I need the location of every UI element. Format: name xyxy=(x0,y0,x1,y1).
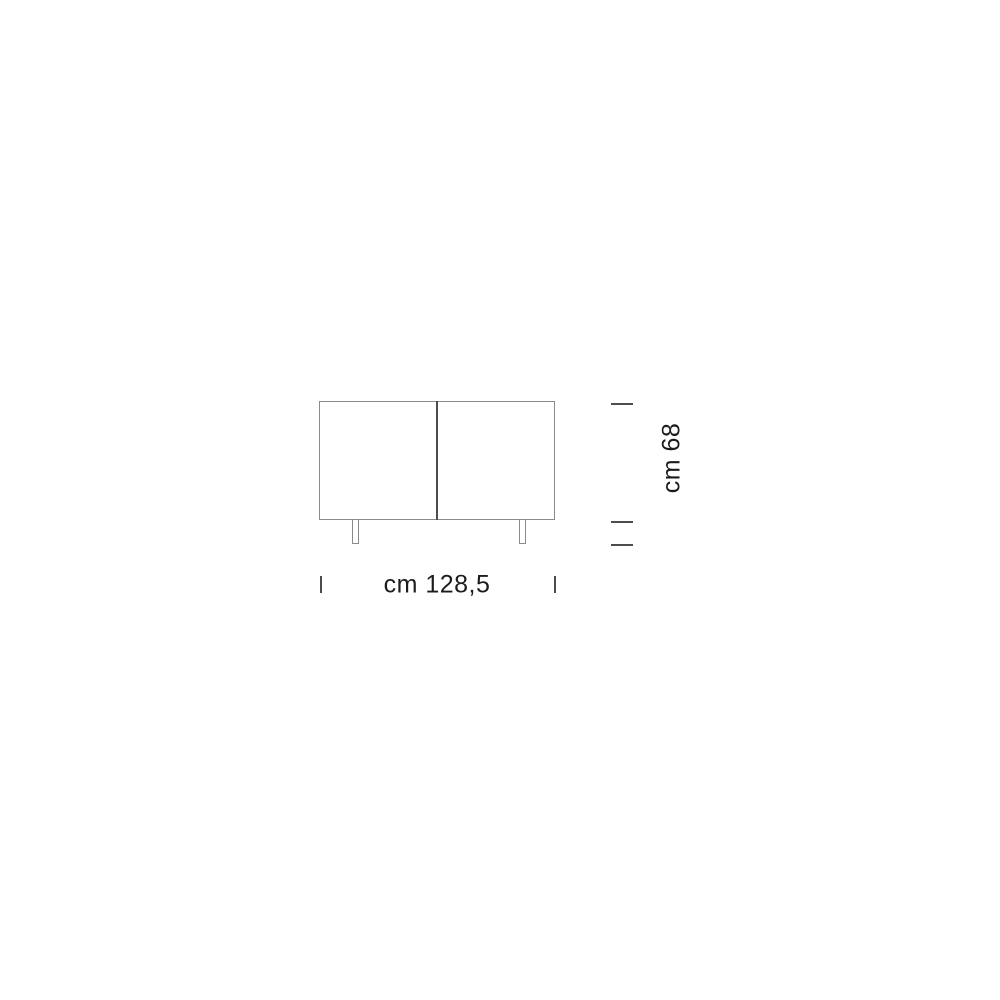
height-tick-top xyxy=(611,403,633,405)
door-divider-line xyxy=(436,401,438,520)
dimension-diagram-canvas: cm 68 cm 128,5 xyxy=(0,0,1000,1000)
height-tick-leg-bottom xyxy=(611,544,633,546)
height-dimension-label: cm 68 xyxy=(658,423,687,494)
cabinet-right-leg xyxy=(519,520,526,544)
cabinet-left-leg xyxy=(352,520,359,544)
width-tick-right xyxy=(554,576,556,593)
width-tick-left xyxy=(320,576,322,593)
width-dimension-label: cm 128,5 xyxy=(384,571,491,600)
height-tick-body-bottom xyxy=(611,521,633,523)
